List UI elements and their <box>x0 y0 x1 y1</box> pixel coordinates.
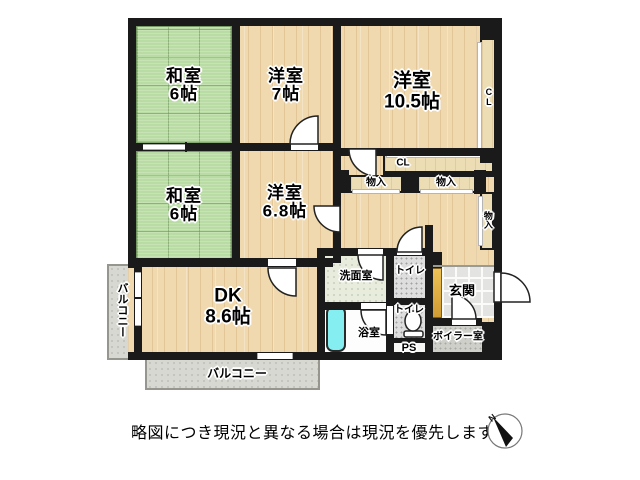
label-monoire-left: 物入 <box>366 179 386 190</box>
label-youshitsu-68: 洋室 6.8帖 <box>263 185 308 222</box>
sliding-door-washitsu <box>143 144 187 150</box>
label-balcony-left: バルコニー <box>115 283 127 338</box>
wall <box>480 155 502 163</box>
label-washitsu-mid: 和室 6帖 <box>166 188 202 225</box>
door-opening <box>334 206 340 232</box>
floorplan-page: 和室 6帖 洋室 7帖 洋室 10.5帖 和室 6帖 洋室 6.8帖 DK 8.… <box>0 0 640 480</box>
wall <box>474 170 486 194</box>
door-opening <box>397 249 422 255</box>
bathtub <box>326 306 346 352</box>
window-tick <box>185 142 187 152</box>
label-ps: PS <box>402 343 417 355</box>
wall <box>494 300 502 360</box>
wall <box>136 258 333 267</box>
label-youshitsu-7: 洋室 7帖 <box>268 68 304 105</box>
closet-slide <box>352 189 400 194</box>
door-arc <box>501 273 530 302</box>
label-senmenshitsu: 洗面室 <box>340 271 373 283</box>
label-boiler: ボイラー室 <box>433 333 483 344</box>
label-toilet-lower: トイレ <box>394 306 424 317</box>
wall <box>333 26 341 151</box>
label-monoire-side: 物入 <box>482 211 492 229</box>
door-opening <box>349 149 376 155</box>
wall <box>232 151 240 267</box>
wall <box>425 225 433 352</box>
genkan-step-line <box>433 265 494 267</box>
door-opening <box>387 306 393 334</box>
window <box>135 272 141 326</box>
wall <box>128 18 502 26</box>
wall <box>232 26 240 151</box>
label-monoire-right: 物入 <box>436 179 456 190</box>
window <box>257 353 293 359</box>
door-opening <box>291 144 318 150</box>
closet-slide <box>477 42 482 154</box>
wall <box>403 173 417 193</box>
label-toilet-upper: トイレ <box>395 267 425 278</box>
wall <box>494 18 502 272</box>
label-cl-right: CL <box>483 87 493 107</box>
closet-slide <box>420 189 473 194</box>
label-balcony-bottom: バルコニー <box>207 368 267 381</box>
wall <box>128 18 136 268</box>
label-cl-under-105: CL <box>396 159 409 170</box>
window-tick <box>134 297 142 299</box>
label-washitsu-top: 和室 6帖 <box>166 68 202 105</box>
label-dk: DK 8.6帖 <box>205 286 250 327</box>
wall <box>480 26 502 38</box>
label-youshitsu-105: 洋室 10.5帖 <box>384 71 440 112</box>
label-yokushitsu: 浴室 <box>358 328 380 340</box>
wall <box>482 322 494 352</box>
wall <box>128 352 502 360</box>
label-genkan: 玄関 <box>449 284 475 298</box>
disclaimer-text: 略図につき現況と異なる場合は現況を優先します <box>131 419 494 443</box>
compass-icon: N <box>482 408 528 454</box>
door-opening <box>361 303 386 309</box>
door-opening <box>452 319 476 325</box>
door-opening <box>358 249 383 255</box>
door-opening <box>268 259 296 266</box>
wall <box>341 170 349 193</box>
